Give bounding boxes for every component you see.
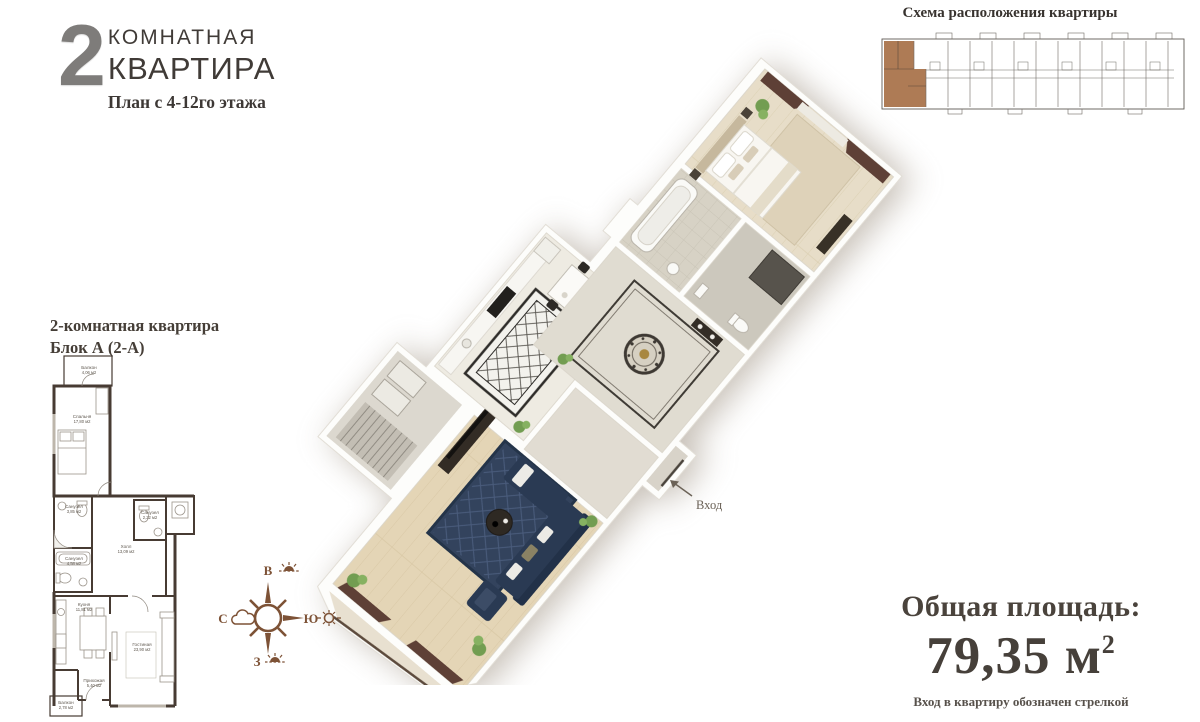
area-number: 79,35 м [926,627,1102,685]
total-area-value: 79,35 м2 [856,626,1186,686]
compass-south-label: Ю [304,611,319,626]
svg-text:2,78 м2: 2,78 м2 [59,705,74,710]
plan2d-drawing: Балкон 4,06 м2 Спальня 17,80 м2 Санузел … [48,352,212,718]
svg-text:4,06 м2: 4,06 м2 [82,370,97,375]
area-summary: Общая площадь: 79,35 м2 Вход в квартиру … [856,590,1186,710]
svg-text:17,80 м2: 17,80 м2 [74,419,92,424]
entrance-callout: Вход [662,472,772,520]
total-area-label: Общая площадь: [856,590,1186,624]
plan2d-title-line1: 2-комнатная квартира [50,315,219,337]
svg-text:23,90 м2: 23,90 м2 [134,647,152,652]
compass-rose: В С Ю З [195,556,345,676]
svg-text:13,09 м2: 13,09 м2 [118,549,136,554]
apartment-3d [250,20,919,685]
entrance-note: Вход в квартиру обозначен стрелкой [856,694,1186,710]
page: 2 КОМНАТНАЯ КВАРТИРА План с 4-12го этажа… [0,0,1200,722]
sunrise-icon [279,562,299,571]
cloud-icon [232,610,255,624]
sun-icon [317,610,341,626]
svg-text:3,85 м2: 3,85 м2 [67,509,82,514]
entrance-label: Вход [696,498,723,512]
svg-text:4,58 м2: 4,58 м2 [67,561,82,566]
svg-text:11,81 м2: 11,81 м2 [76,607,93,612]
room-count-number: 2 [58,16,104,96]
sunset-icon [265,653,285,662]
compass-west-label: З [254,654,261,669]
header-title: 2 КОМНАТНАЯ КВАРТИРА План с 4-12го этажа [58,16,276,113]
svg-text:2,22 м2: 2,22 м2 [143,515,158,520]
area-superscript: 2 [1102,630,1116,659]
svg-text:5,40 м2: 5,40 м2 [87,683,102,688]
compass-east-label: В [264,563,273,578]
render-3d [250,20,950,685]
compass-north-label: С [218,611,227,626]
entrance-arrow-icon [670,480,692,496]
